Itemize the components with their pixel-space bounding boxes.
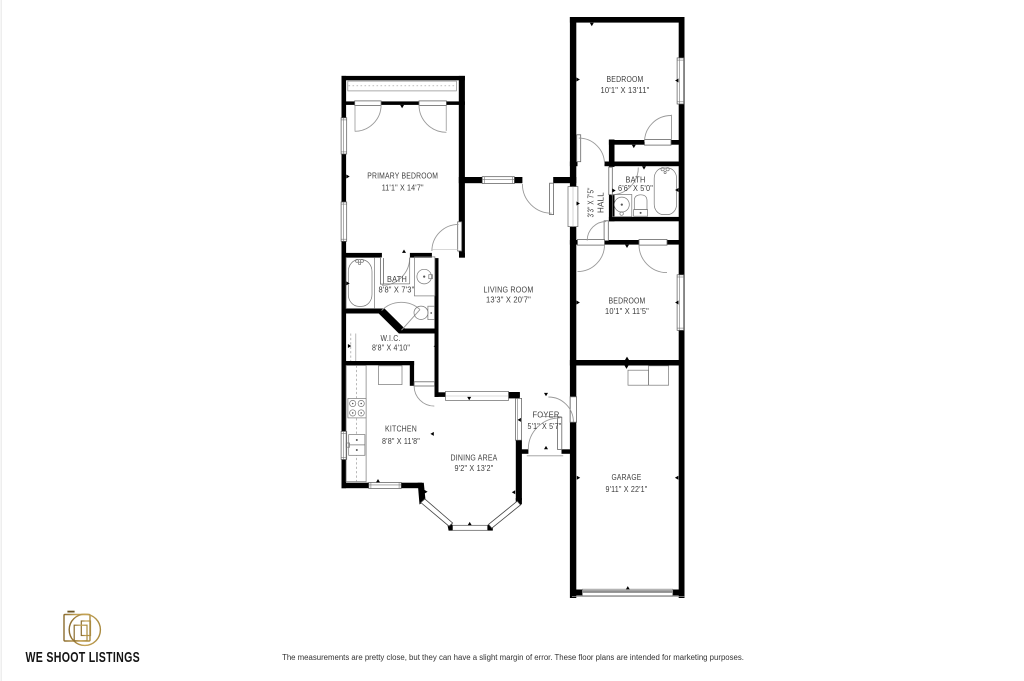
svg-text:13'3" X 20'7": 13'3" X 20'7" — [486, 296, 531, 305]
svg-text:8'8" X 11'8": 8'8" X 11'8" — [382, 437, 420, 446]
svg-text:3'3" X 7'5": 3'3" X 7'5" — [587, 188, 596, 218]
svg-text:BEDROOM: BEDROOM — [607, 74, 644, 84]
svg-text:HALL: HALL — [596, 192, 606, 213]
svg-text:KITCHEN: KITCHEN — [385, 424, 417, 434]
svg-text:WE SHOOT LISTINGS: WE SHOOT LISTINGS — [26, 650, 141, 666]
svg-text:9'11" X 22'1": 9'11" X 22'1" — [606, 485, 648, 494]
svg-text:BEDROOM: BEDROOM — [609, 295, 646, 305]
svg-text:W.I.C.: W.I.C. — [381, 333, 401, 343]
svg-text:GARAGE: GARAGE — [612, 472, 642, 482]
svg-text:11'1" X 14'7": 11'1" X 14'7" — [382, 184, 424, 193]
svg-text:8'8" X 7'3": 8'8" X 7'3" — [379, 286, 415, 295]
svg-text:The measurements are pretty cl: The measurements are pretty close, but t… — [282, 653, 744, 662]
svg-text:10'1" X 11'5": 10'1" X 11'5" — [605, 307, 649, 316]
svg-text:5'1" X 5'7": 5'1" X 5'7" — [528, 422, 562, 431]
svg-text:BATH: BATH — [387, 274, 407, 284]
svg-text:9'2" X 13'2": 9'2" X 13'2" — [455, 464, 494, 473]
svg-text:6'6" X 5'0": 6'6" X 5'0" — [618, 184, 653, 193]
svg-text:8'8" X 4'10": 8'8" X 4'10" — [372, 344, 410, 353]
svg-text:FOYER: FOYER — [533, 410, 560, 420]
svg-text:LIVING ROOM: LIVING ROOM — [484, 284, 534, 294]
svg-text:BATH: BATH — [626, 175, 646, 185]
svg-text:DINING AREA: DINING AREA — [451, 453, 498, 463]
svg-text:PRIMARY BEDROOM: PRIMARY BEDROOM — [367, 171, 438, 181]
svg-text:10'1" X 13'11": 10'1" X 13'11" — [601, 86, 650, 95]
